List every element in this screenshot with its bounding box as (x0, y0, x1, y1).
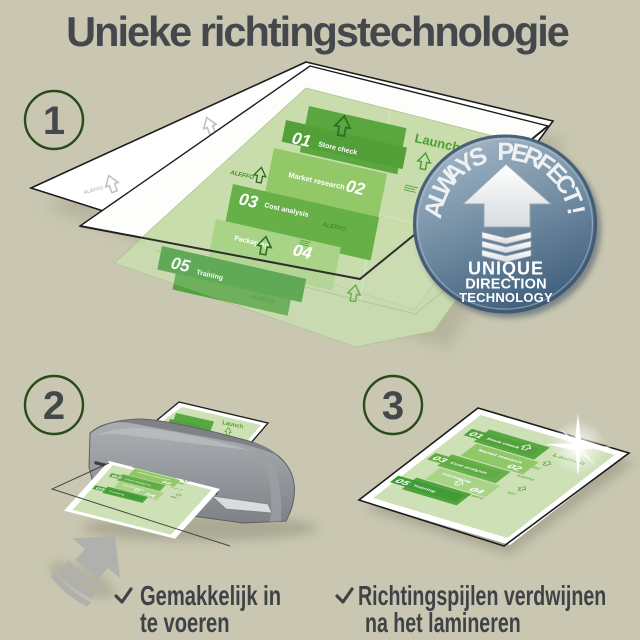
svg-text:Unieke richtingstechnologie: Unieke richtingstechnologie (66, 8, 569, 55)
svg-text:UNIQUE: UNIQUE (468, 259, 544, 279)
svg-text:te voeren: te voeren (140, 608, 230, 639)
svg-text:3: 3 (382, 384, 404, 428)
svg-text:1: 1 (43, 99, 65, 143)
svg-text:na het lamineren: na het lamineren (365, 608, 521, 639)
svg-text:2: 2 (43, 384, 65, 428)
svg-text:TECHNOLOGY: TECHNOLOGY (459, 290, 553, 305)
